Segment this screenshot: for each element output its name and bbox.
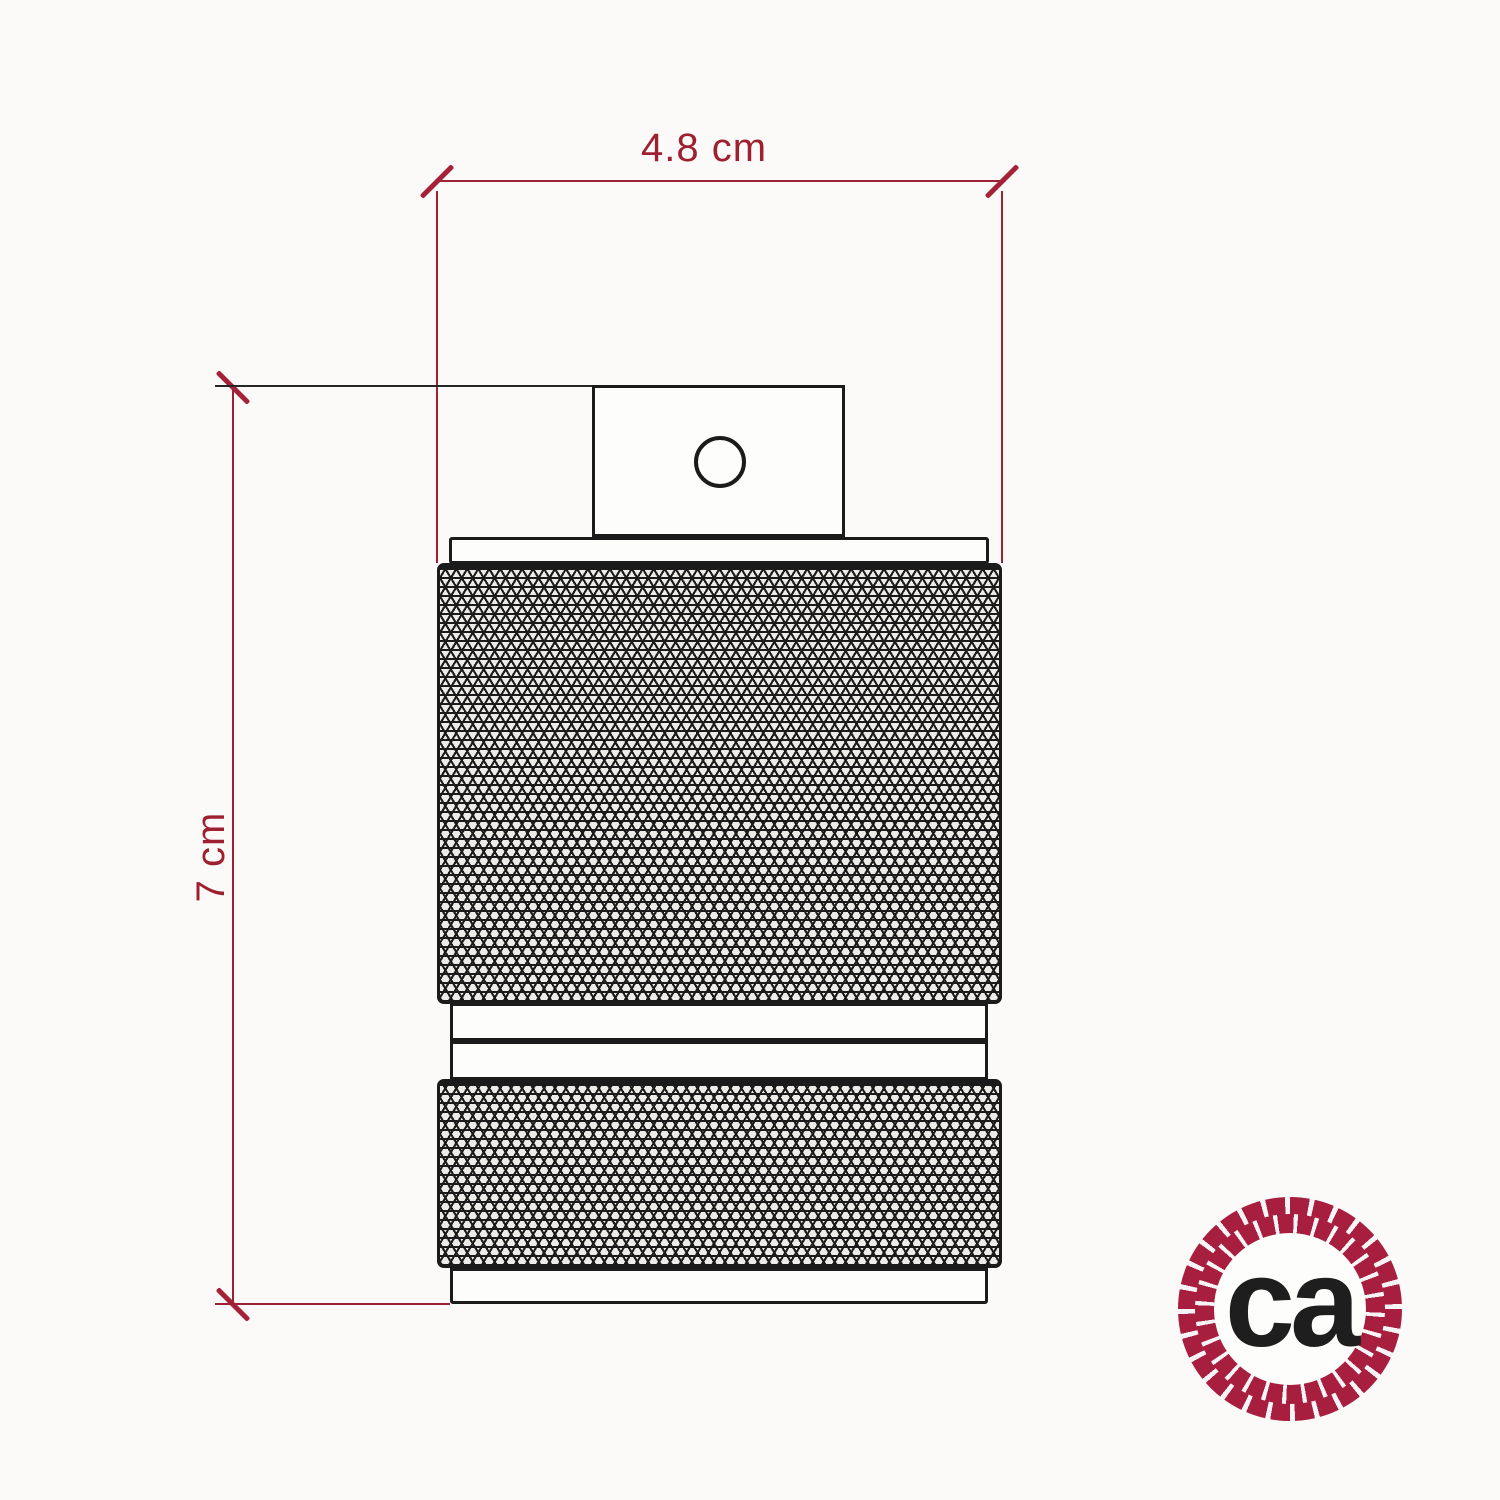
height-dimension-label: 7 cm bbox=[189, 797, 233, 917]
smooth-ring-upper bbox=[450, 1003, 988, 1041]
cable-entry-hole-icon bbox=[694, 436, 746, 488]
brand-logo-text: ca bbox=[1178, 1197, 1402, 1421]
width-extension-line-right bbox=[1001, 191, 1003, 563]
width-extension-line-left bbox=[436, 191, 438, 563]
smooth-ring-lower bbox=[450, 1041, 988, 1080]
height-extension-line-top bbox=[215, 385, 594, 387]
width-dimension-line bbox=[437, 180, 1002, 182]
bottom-ring bbox=[450, 1268, 988, 1304]
brand-logo: ca bbox=[1178, 1197, 1402, 1421]
height-extension-line-bottom bbox=[215, 1303, 450, 1305]
top-cap-plate bbox=[449, 537, 989, 564]
knurled-body-upper bbox=[437, 563, 1002, 1004]
dimension-drawing: 4.8 cm 7 cm ca bbox=[0, 0, 1500, 1500]
width-dimension-label: 4.8 cm bbox=[544, 126, 864, 171]
knurled-body-lower bbox=[437, 1079, 1002, 1268]
